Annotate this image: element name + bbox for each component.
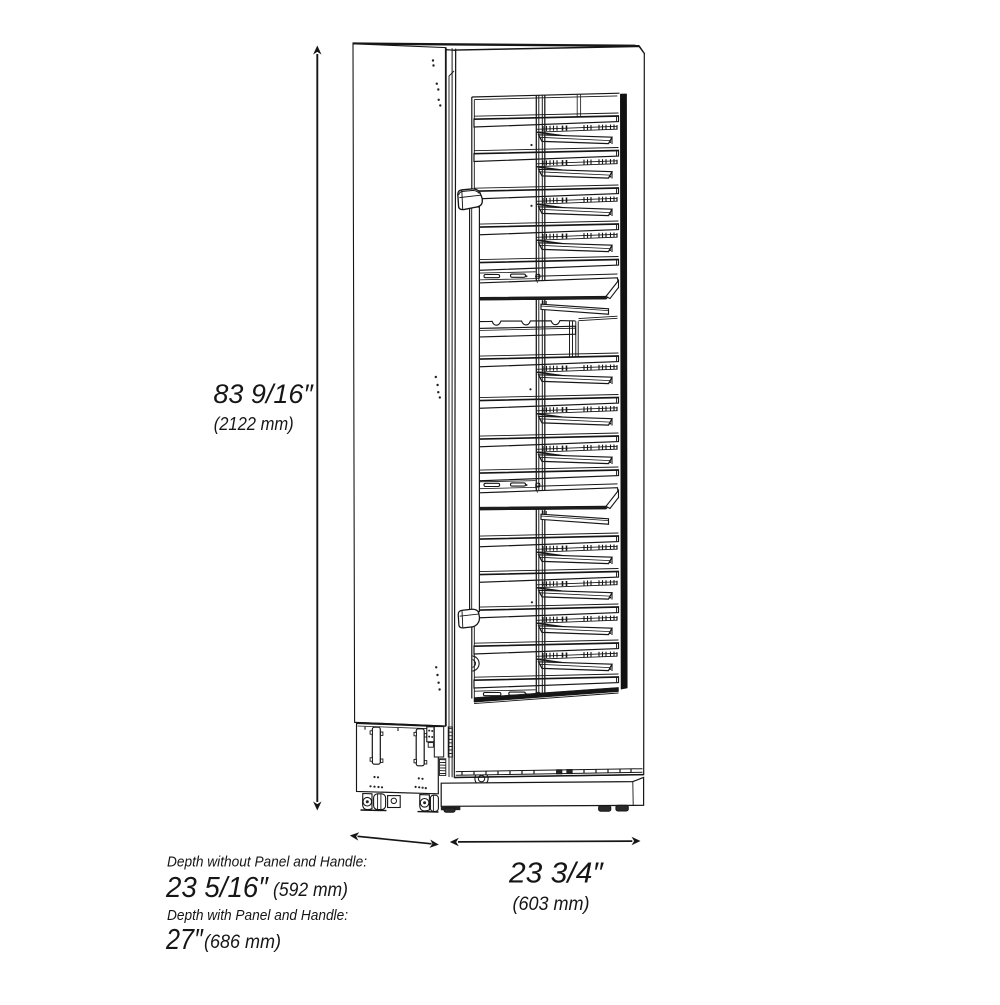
svg-text:(2122 mm): (2122 mm) [214,413,294,434]
svg-text:23 3/4″: 23 3/4″ [508,858,605,890]
svg-text:(592 mm): (592 mm) [273,880,348,901]
svg-text:23 5/16″: 23 5/16″ [165,872,270,904]
svg-text:Depth with Panel and Handle:: Depth with Panel and Handle: [167,907,348,924]
svg-text:Depth without Panel and Handle: Depth without Panel and Handle: [167,854,367,871]
svg-text:27″: 27″ [165,924,204,956]
svg-text:83 9/16″: 83 9/16″ [213,379,314,409]
svg-text:(603 mm): (603 mm) [513,893,590,915]
svg-text:(686 mm): (686 mm) [204,932,281,953]
